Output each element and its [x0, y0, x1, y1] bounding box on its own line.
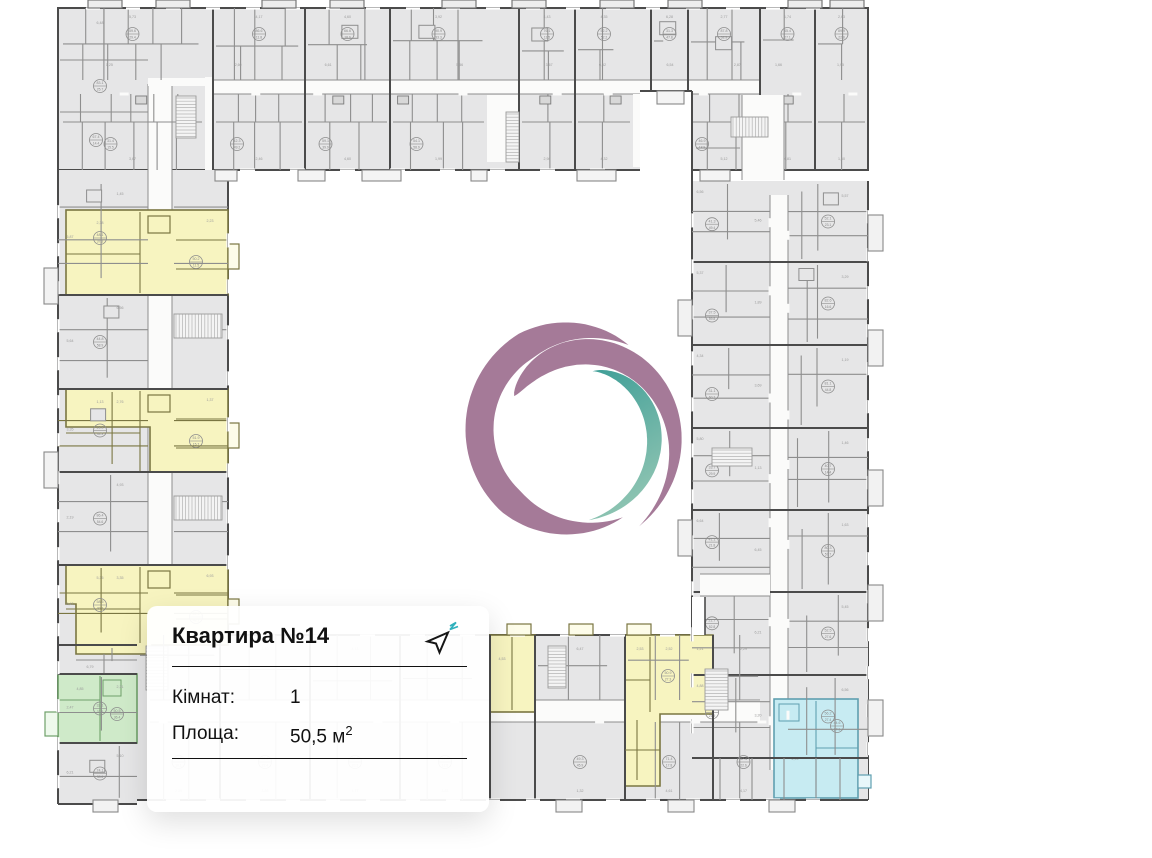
svg-text:31.1: 31.1 — [709, 389, 716, 393]
svg-text:3,35: 3,35 — [117, 576, 124, 580]
svg-text:4,34: 4,34 — [697, 354, 704, 358]
svg-text:22.6: 22.6 — [740, 764, 747, 768]
svg-text:23.1: 23.1 — [825, 223, 832, 227]
svg-text:80.3: 80.3 — [825, 546, 832, 550]
svg-text:58.8: 58.8 — [97, 426, 104, 430]
svg-text:4,17: 4,17 — [256, 15, 263, 19]
svg-text:5,46: 5,46 — [755, 219, 762, 223]
svg-text:27.6: 27.6 — [825, 635, 832, 639]
svg-text:5,56: 5,56 — [456, 63, 463, 67]
svg-text:2,23: 2,23 — [207, 219, 214, 223]
svg-text:37.4: 37.4 — [740, 757, 747, 761]
svg-text:49.2: 49.2 — [234, 146, 241, 150]
svg-text:51.9: 51.9 — [193, 436, 200, 440]
svg-text:60.7: 60.7 — [709, 396, 716, 400]
svg-text:14.4: 14.4 — [825, 471, 832, 475]
svg-text:3,69: 3,69 — [755, 384, 762, 388]
svg-text:44.8: 44.8 — [825, 388, 832, 392]
svg-text:39.9: 39.9 — [322, 146, 329, 150]
svg-text:86.4: 86.4 — [97, 514, 104, 518]
svg-text:1,19: 1,19 — [842, 358, 849, 362]
svg-text:31.3: 31.3 — [666, 29, 673, 33]
svg-text:32.6: 32.6 — [97, 710, 104, 714]
svg-text:33.3: 33.3 — [435, 36, 442, 40]
svg-text:67.4: 67.4 — [93, 135, 100, 139]
svg-text:22.8: 22.8 — [838, 36, 845, 40]
svg-text:6,21: 6,21 — [67, 771, 74, 775]
svg-text:5,35: 5,35 — [97, 576, 104, 580]
svg-text:6,45: 6,45 — [755, 548, 762, 552]
svg-text:56.2: 56.2 — [825, 712, 832, 716]
svg-text:38.6: 38.6 — [97, 775, 104, 779]
svg-text:2,60: 2,60 — [235, 63, 242, 67]
svg-text:57.7: 57.7 — [825, 553, 832, 557]
svg-text:4,17: 4,17 — [740, 789, 747, 793]
svg-text:5,10: 5,10 — [117, 754, 124, 758]
svg-text:74.1: 74.1 — [97, 769, 104, 773]
svg-text:1,46: 1,46 — [842, 441, 849, 445]
svg-text:6,61: 6,61 — [325, 63, 332, 67]
svg-text:45.4: 45.4 — [784, 29, 791, 33]
svg-text:20.7: 20.7 — [97, 607, 104, 611]
svg-text:6,87: 6,87 — [67, 235, 74, 239]
svg-text:5,80: 5,80 — [697, 437, 704, 441]
svg-text:2,47: 2,47 — [67, 706, 74, 710]
svg-text:4,53: 4,53 — [499, 657, 506, 661]
svg-text:21.7: 21.7 — [709, 619, 716, 623]
svg-text:2,98: 2,98 — [544, 157, 551, 161]
svg-text:52.8: 52.8 — [709, 625, 716, 629]
svg-text:58.5: 58.5 — [97, 600, 104, 604]
svg-text:44.8: 44.8 — [97, 337, 104, 341]
svg-text:3,92: 3,92 — [435, 15, 442, 19]
svg-text:29.9: 29.9 — [709, 472, 716, 476]
svg-text:25.7: 25.7 — [97, 88, 104, 92]
svg-text:59.8: 59.8 — [709, 317, 716, 321]
svg-text:6,52: 6,52 — [599, 63, 606, 67]
svg-text:47.8: 47.8 — [666, 36, 673, 40]
svg-text:83.1: 83.1 — [97, 81, 104, 85]
svg-text:29.4: 29.4 — [129, 36, 136, 40]
svg-text:16.6: 16.6 — [825, 305, 832, 309]
svg-text:48.1: 48.1 — [97, 233, 104, 237]
svg-text:44.3: 44.3 — [97, 432, 104, 436]
svg-text:6,48: 6,48 — [97, 21, 104, 25]
svg-text:5,57: 5,57 — [842, 194, 849, 198]
svg-text:42.3: 42.3 — [234, 139, 241, 143]
svg-text:27.3: 27.3 — [665, 678, 672, 682]
svg-text:1,37: 1,37 — [207, 398, 214, 402]
svg-text:37.5: 37.5 — [709, 311, 716, 315]
svg-text:58.9: 58.9 — [97, 344, 104, 348]
svg-text:40.7: 40.7 — [825, 464, 832, 468]
svg-text:6,28: 6,28 — [666, 15, 673, 19]
svg-text:5,73: 5,73 — [129, 15, 136, 19]
svg-text:6,56: 6,56 — [117, 306, 124, 310]
svg-text:2,87: 2,87 — [734, 63, 741, 67]
svg-text:3,29: 3,29 — [842, 275, 849, 279]
svg-text:54.1: 54.1 — [413, 139, 420, 143]
svg-text:66.6: 66.6 — [344, 29, 351, 33]
svg-text:5,37: 5,37 — [697, 271, 704, 275]
svg-text:4,60: 4,60 — [344, 15, 351, 19]
svg-text:15.5: 15.5 — [107, 146, 114, 150]
svg-text:87.8: 87.8 — [721, 29, 728, 33]
svg-text:89.9: 89.9 — [838, 29, 845, 33]
svg-text:58.9: 58.9 — [413, 146, 420, 150]
svg-text:17.8: 17.8 — [666, 764, 673, 768]
svg-text:4,85: 4,85 — [77, 687, 84, 691]
svg-text:1,66: 1,66 — [775, 63, 782, 67]
svg-text:50.2: 50.2 — [193, 257, 200, 261]
svg-text:1,89: 1,89 — [755, 301, 762, 305]
svg-text:52.2: 52.2 — [601, 36, 608, 40]
svg-text:49.4: 49.4 — [709, 226, 716, 230]
svg-text:1,45: 1,45 — [117, 192, 124, 196]
svg-text:5,64: 5,64 — [67, 339, 74, 343]
svg-text:37.3: 37.3 — [97, 240, 104, 244]
svg-text:14.4: 14.4 — [93, 142, 100, 146]
svg-text:4,43: 4,43 — [544, 15, 551, 19]
svg-text:54.6: 54.6 — [97, 520, 104, 524]
svg-text:4,93: 4,93 — [117, 483, 124, 487]
svg-text:52.9: 52.9 — [721, 36, 728, 40]
svg-text:31.4: 31.4 — [107, 139, 114, 143]
svg-text:52.2: 52.2 — [601, 29, 608, 33]
svg-text:2,19: 2,19 — [67, 516, 74, 520]
svg-text:5,45: 5,45 — [842, 605, 849, 609]
svg-text:2,76: 2,76 — [117, 400, 124, 404]
svg-text:1,13: 1,13 — [97, 400, 104, 404]
svg-text:2,53: 2,53 — [637, 647, 644, 651]
svg-text:52.5: 52.5 — [825, 629, 832, 633]
svg-text:6,64: 6,64 — [697, 519, 704, 523]
svg-text:27.1: 27.1 — [784, 36, 791, 40]
svg-text:1,60: 1,60 — [838, 157, 845, 161]
svg-text:2,46: 2,46 — [256, 157, 263, 161]
svg-text:1,32: 1,32 — [577, 789, 584, 793]
svg-text:6,56: 6,56 — [842, 688, 849, 692]
svg-text:4,32: 4,32 — [601, 157, 608, 161]
svg-text:36.4: 36.4 — [114, 716, 121, 720]
svg-text:6,47: 6,47 — [577, 647, 584, 651]
svg-text:81.1: 81.1 — [825, 382, 832, 386]
svg-text:6,79: 6,79 — [87, 665, 94, 669]
svg-text:52.1: 52.1 — [825, 217, 832, 221]
svg-text:1,63: 1,63 — [842, 523, 849, 527]
svg-text:5,12: 5,12 — [721, 157, 728, 161]
svg-text:4,60: 4,60 — [344, 157, 351, 161]
svg-text:3,35: 3,35 — [67, 428, 74, 432]
svg-text:2,31: 2,31 — [117, 685, 124, 689]
svg-text:2,52: 2,52 — [666, 647, 673, 651]
svg-text:6,93: 6,93 — [207, 574, 214, 578]
svg-text:82.6: 82.6 — [825, 299, 832, 303]
svg-text:3,67: 3,67 — [129, 157, 136, 161]
svg-text:50.9: 50.9 — [665, 671, 672, 675]
svg-text:49.3: 49.3 — [577, 757, 584, 761]
svg-text:6,21: 6,21 — [755, 631, 762, 635]
svg-text:59.6: 59.6 — [129, 29, 136, 33]
svg-text:46.9: 46.9 — [699, 139, 706, 143]
svg-text:2,38: 2,38 — [97, 221, 104, 225]
svg-text:6,54: 6,54 — [667, 63, 674, 67]
svg-text:1,74: 1,74 — [784, 15, 791, 19]
svg-text:2,63: 2,63 — [838, 15, 845, 19]
svg-text:90.9: 90.9 — [435, 29, 442, 33]
svg-text:45.9: 45.9 — [577, 764, 584, 768]
svg-text:6,42: 6,42 — [67, 602, 74, 606]
svg-text:11.8: 11.8 — [256, 36, 262, 40]
svg-text:59.1: 59.1 — [322, 139, 329, 143]
svg-text:27.4: 27.4 — [825, 718, 832, 722]
svg-text:3,20: 3,20 — [755, 714, 762, 718]
svg-text:1,25: 1,25 — [106, 63, 113, 67]
svg-text:76.1: 76.1 — [544, 29, 551, 33]
svg-text:41.1: 41.1 — [709, 537, 716, 541]
svg-text:4,81: 4,81 — [784, 157, 791, 161]
svg-text:2,29: 2,29 — [740, 647, 747, 651]
svg-text:11.5: 11.5 — [544, 36, 550, 40]
svg-text:1,13: 1,13 — [755, 466, 762, 470]
svg-text:4,61: 4,61 — [666, 789, 673, 793]
svg-text:1,99: 1,99 — [435, 157, 442, 161]
svg-text:11.5: 11.5 — [193, 264, 199, 268]
svg-text:4,88: 4,88 — [697, 684, 704, 688]
svg-text:18.9: 18.9 — [344, 36, 351, 40]
svg-text:6,56: 6,56 — [697, 190, 704, 194]
svg-text:86.6: 86.6 — [256, 29, 263, 33]
svg-text:41.3: 41.3 — [709, 219, 716, 223]
svg-text:21.8: 21.8 — [709, 544, 716, 548]
svg-text:2,77: 2,77 — [721, 15, 728, 19]
svg-text:3,67: 3,67 — [546, 63, 553, 67]
svg-text:4,35: 4,35 — [601, 15, 608, 19]
svg-text:1,95: 1,95 — [837, 63, 844, 67]
svg-text:32.1: 32.1 — [97, 704, 104, 708]
svg-text:71.4: 71.4 — [666, 757, 673, 761]
